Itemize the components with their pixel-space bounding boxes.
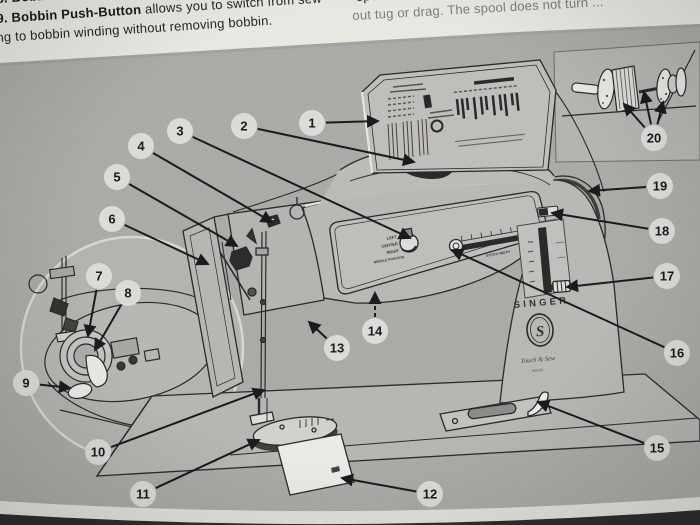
- callout-number: 10: [91, 445, 105, 460]
- callout-number: 1: [308, 116, 315, 131]
- stitch-width-lever: [450, 240, 463, 253]
- callout-number: 9: [22, 376, 29, 391]
- sewing-machine-diagram: LEFT CENTER RIGHT NEEDLE POSITION STITCH…: [0, 0, 700, 525]
- callout-number: 17: [660, 269, 674, 284]
- callout-number: 15: [650, 441, 664, 456]
- callout-number: 14: [368, 324, 383, 339]
- callout-number: 12: [423, 487, 437, 502]
- callout-number: 18: [655, 224, 669, 239]
- callout-number: 11: [136, 487, 150, 502]
- callout-number: 13: [330, 341, 344, 356]
- callout-number: 16: [670, 346, 684, 361]
- callout-number: 5: [113, 170, 120, 185]
- callout-number: 19: [653, 179, 667, 194]
- manual-photo: LEFT CENTER RIGHT NEEDLE POSITION STITCH…: [0, 0, 700, 525]
- caption-8-number: 8.: [0, 0, 8, 6]
- callout-number: 7: [95, 269, 102, 284]
- callout-number: 8: [124, 286, 131, 301]
- callout-number: 6: [108, 212, 115, 227]
- callout-number: 3: [176, 124, 183, 139]
- callout-number: 4: [137, 139, 145, 154]
- callout-number: 20: [647, 131, 661, 146]
- callout-number: 2: [240, 119, 247, 134]
- singer-monogram: S: [535, 324, 545, 341]
- spool-pins-inset: [554, 42, 700, 162]
- caption-9-number: 9.: [0, 10, 8, 26]
